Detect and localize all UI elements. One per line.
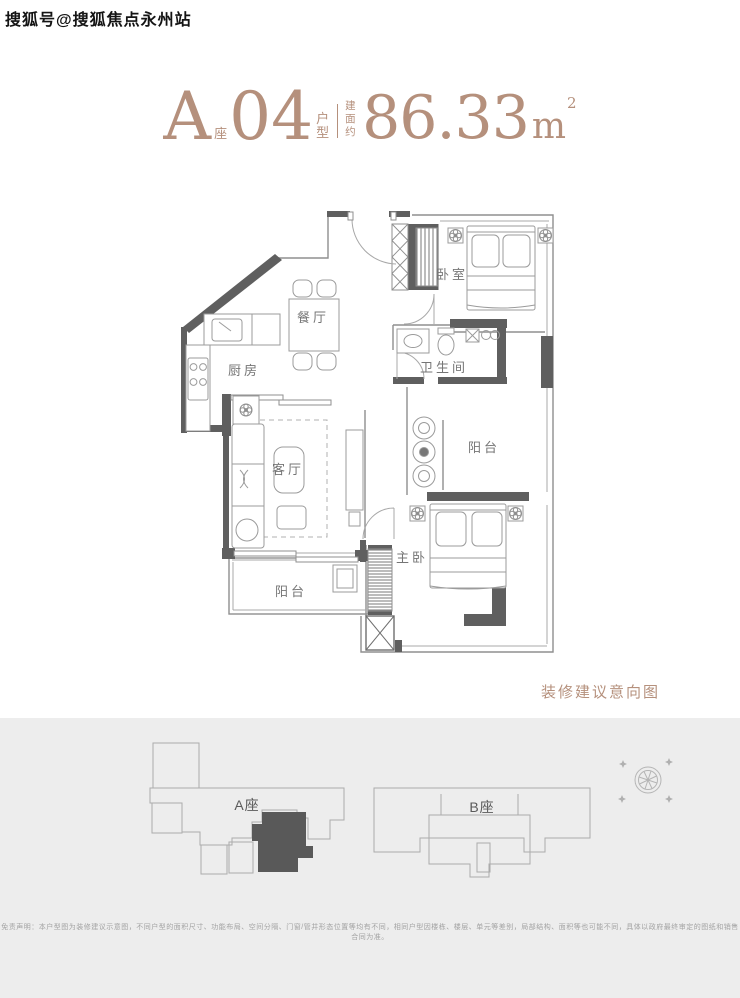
- room-label-kitchen: 厨房: [228, 363, 260, 378]
- balcony-equipment: [413, 417, 435, 487]
- sitemap-diagram: A座 B座: [0, 718, 740, 998]
- floorplan: 卧室 餐厅 厨房 卫生间 阳台 客厅 主卧 阳台: [0, 0, 740, 718]
- room-label-balcony-left: 阳台: [275, 584, 307, 599]
- page: 搜狐号@搜狐焦点永州站 A 座 04 户型 建面约 86.33 m 2: [0, 0, 740, 998]
- room-label-master: 主卧: [396, 550, 428, 565]
- sitemap-panel: A座 B座 免责声明：本户型图为装修建议示意图，不同户型的面积尺寸、功能布局: [0, 718, 740, 998]
- room-label-living: 客厅: [272, 462, 304, 477]
- room-label-balcony-right: 阳台: [468, 440, 500, 455]
- highlighted-unit: [252, 812, 313, 872]
- disclaimer-text: 免责声明：本户型图为装修建议示意图，不同户型的面积尺寸、功能布局、空间分隔、门窗…: [0, 922, 740, 942]
- room-label-bedroom: 卧室: [436, 267, 468, 282]
- room-label-dining: 餐厅: [297, 310, 329, 325]
- bed-master: [410, 504, 523, 589]
- room-label-bathroom: 卫生间: [420, 360, 468, 375]
- block-a-label: A座: [234, 797, 259, 813]
- dining-set: [289, 280, 339, 370]
- balcony-appliance: [333, 565, 357, 592]
- wardrobe-bedroom: [416, 228, 438, 286]
- furniture: [186, 226, 553, 592]
- wardrobe-master: [368, 549, 392, 611]
- plan-caption: 装修建议意向图: [541, 681, 660, 702]
- block-b-label: B座: [469, 799, 494, 815]
- compass-icon: [618, 758, 673, 803]
